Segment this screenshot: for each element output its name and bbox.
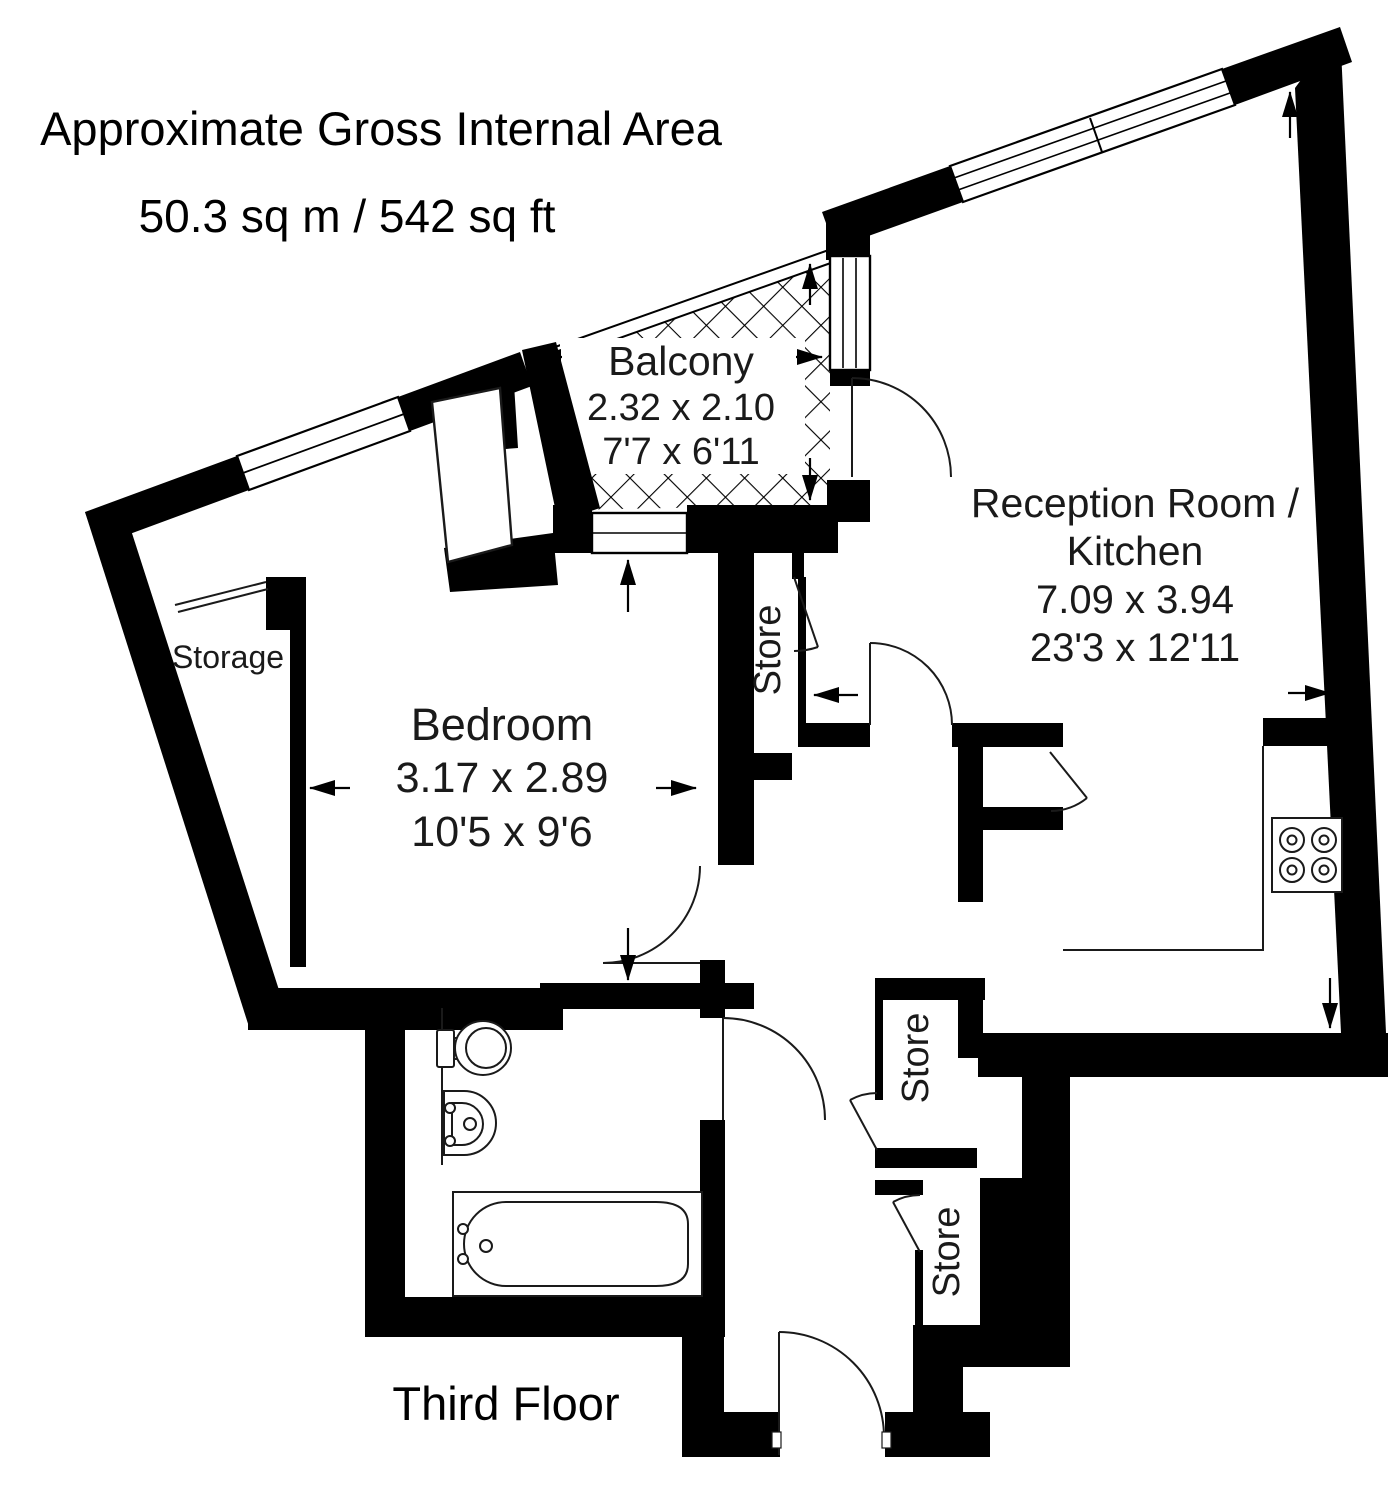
page-title: Approximate Gross Internal Area (40, 102, 723, 155)
door-balcony-reception (852, 378, 951, 477)
floor-plan-page: Approximate Gross Internal Area 50.3 sq … (0, 0, 1388, 1503)
door-bedroom (603, 866, 700, 963)
reception-dim-metric: 7.09 x 3.94 (1036, 578, 1234, 622)
door-bathroom (723, 1018, 825, 1120)
gross-area-value: 50.3 sq m / 542 sq ft (139, 190, 556, 242)
storage-name: Storage (172, 639, 284, 675)
bedroom-dim-imperial: 10'5 x 9'6 (411, 808, 592, 856)
toilet-fixture (437, 1021, 511, 1075)
sink-fixture (444, 1091, 496, 1155)
angled-closet-outline (432, 388, 512, 562)
bedroom-dim-metric: 3.17 x 2.89 (396, 754, 609, 802)
window-balcony-reception (830, 256, 870, 370)
door-hall-reception (870, 643, 952, 725)
reception-name-line2: Kitchen (1067, 528, 1204, 574)
bathtub-fixture (453, 1192, 702, 1296)
door-kitchen-closet (1050, 752, 1087, 811)
store-lower-name: Store (926, 1207, 968, 1298)
door-store-lower (893, 1195, 920, 1252)
store-upper-name: Store (747, 605, 789, 696)
reception-dim-imperial: 23'3 x 12'11 (1030, 626, 1240, 670)
door-entrance (772, 1332, 891, 1455)
hob-fixture (1272, 818, 1342, 892)
window-bedroom-balcony (592, 513, 687, 553)
window-top-right (950, 69, 1235, 202)
balcony-dim-imperial: 7'7 x 6'11 (602, 431, 759, 473)
floor-plan: Approximate Gross Internal Area 50.3 sq … (0, 0, 1388, 1503)
bedroom-name: Bedroom (411, 699, 594, 750)
store-middle-name: Store (895, 1013, 937, 1104)
reception-name-line1: Reception Room / (971, 480, 1300, 526)
window-top-left (237, 397, 410, 490)
kitchen-counter-line (1063, 746, 1263, 950)
balcony-name: Balcony (608, 338, 754, 384)
storage-front-line (175, 582, 268, 612)
balcony-dim-metric: 2.32 x 2.10 (587, 387, 775, 429)
floor-label: Third Floor (392, 1377, 619, 1430)
door-store-middle (850, 1093, 877, 1150)
